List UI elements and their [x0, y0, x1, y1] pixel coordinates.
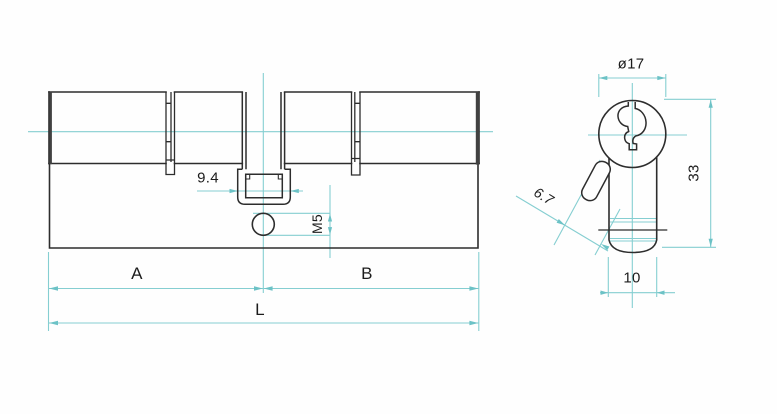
dim-label-width: 10	[623, 270, 640, 287]
dim-label-cam-width: 9.4	[197, 170, 219, 187]
dim-label-b: B	[361, 264, 373, 284]
dim-label-height: 33	[686, 164, 703, 181]
drawing-canvas: 9.4 M5 A B L ø17 6.7 33 10	[0, 0, 777, 414]
side-view-fills	[49, 91, 479, 248]
cam-lobe	[579, 159, 613, 204]
dim-label-l: L	[255, 300, 265, 320]
side-view	[28, 73, 493, 331]
dim-label-diameter: ø17	[618, 56, 645, 73]
dim-label-a: A	[131, 264, 143, 284]
cylinder-drawing	[0, 0, 777, 414]
dim-label-screw-thread: M5	[309, 214, 325, 234]
